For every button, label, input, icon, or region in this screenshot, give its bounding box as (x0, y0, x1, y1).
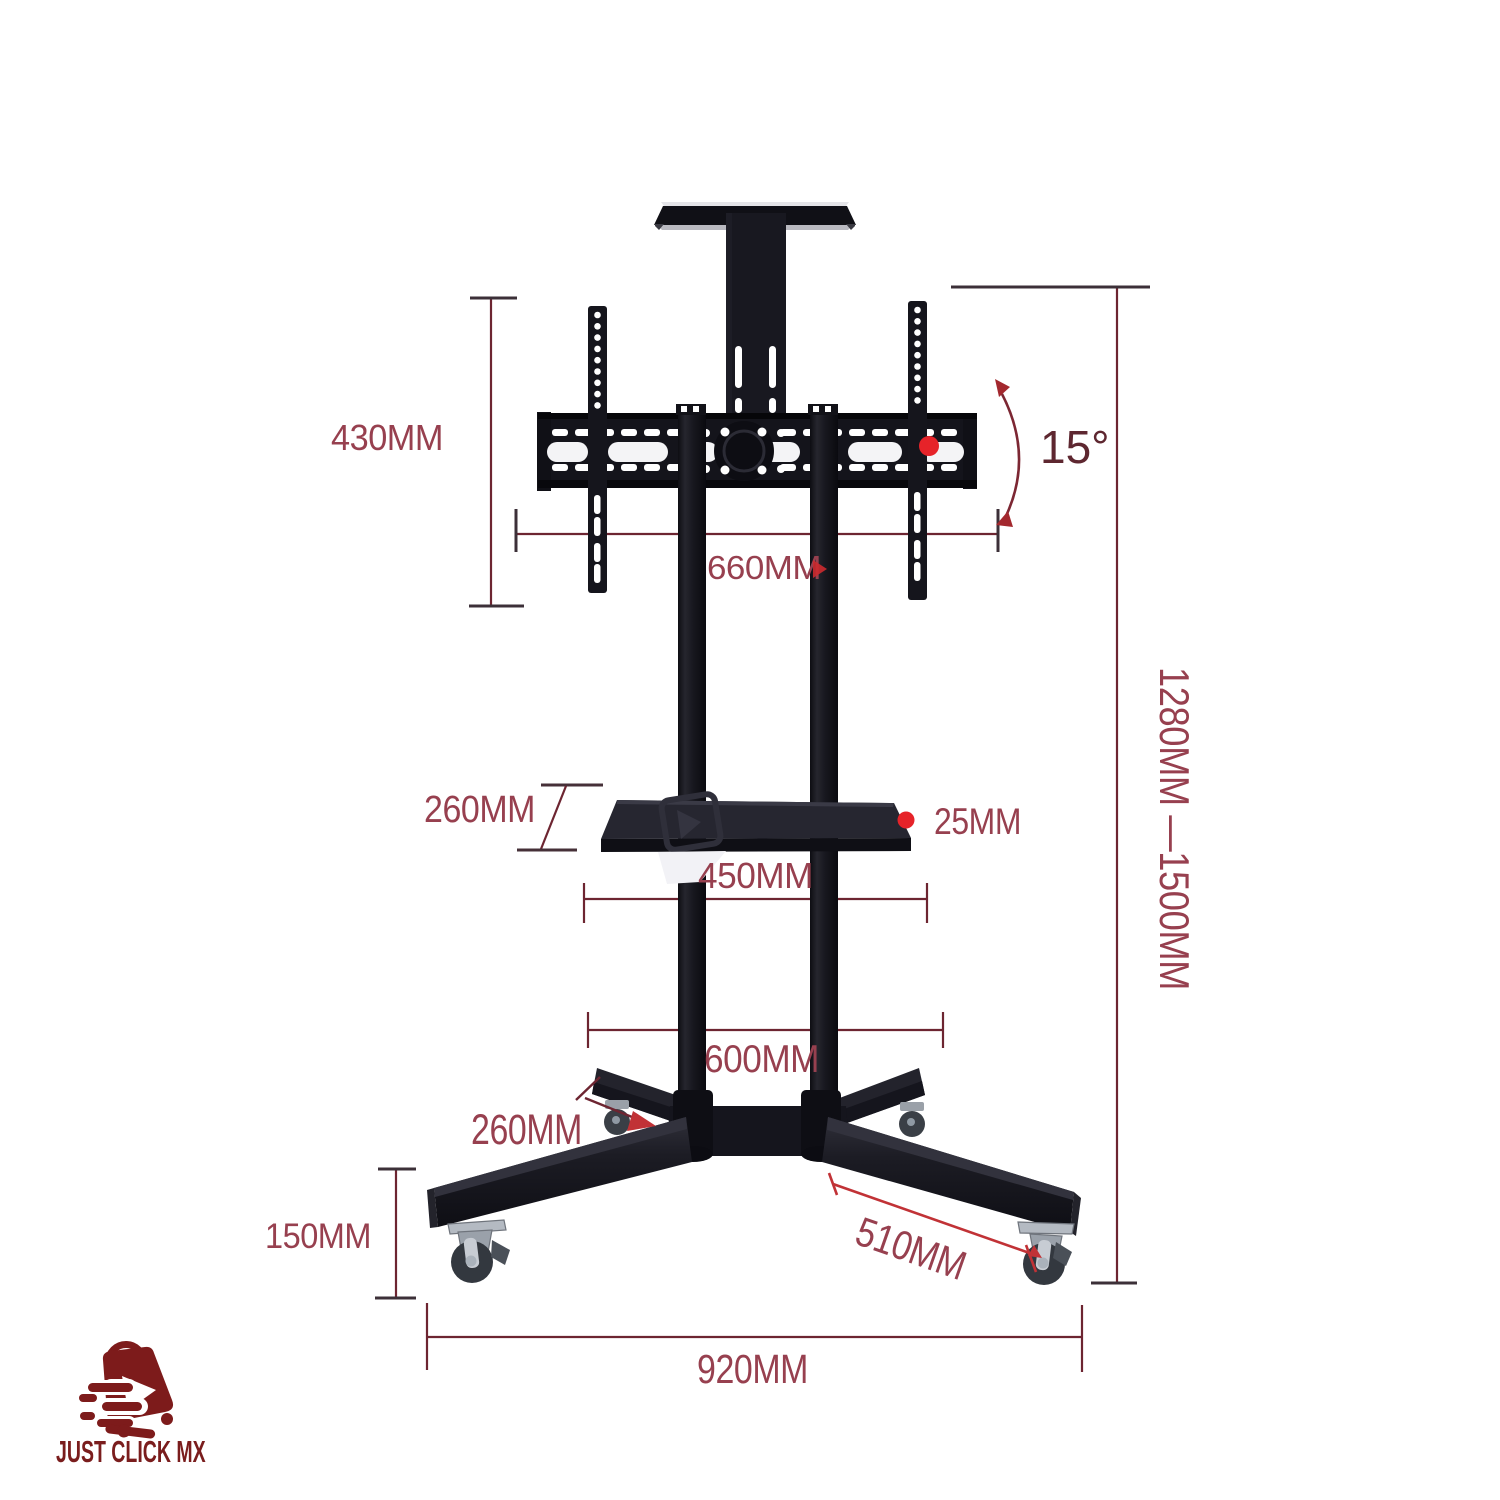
svg-text:660MM: 660MM (707, 549, 821, 586)
svg-text:JUST CLICK MX: JUST CLICK MX (56, 1436, 206, 1470)
svg-text:920MM: 920MM (697, 1346, 808, 1392)
svg-text:450MM: 450MM (698, 855, 813, 896)
svg-text:600MM: 600MM (704, 1038, 819, 1081)
svg-text:1280MM —1500MM: 1280MM —1500MM (1151, 667, 1198, 990)
svg-text:150MM: 150MM (265, 1217, 371, 1256)
svg-text:430MM: 430MM (331, 417, 443, 458)
svg-text:260MM: 260MM (471, 1106, 582, 1154)
svg-text:25MM: 25MM (934, 801, 1021, 842)
svg-text:260MM: 260MM (424, 789, 535, 831)
svg-text:15°: 15° (1040, 421, 1110, 473)
